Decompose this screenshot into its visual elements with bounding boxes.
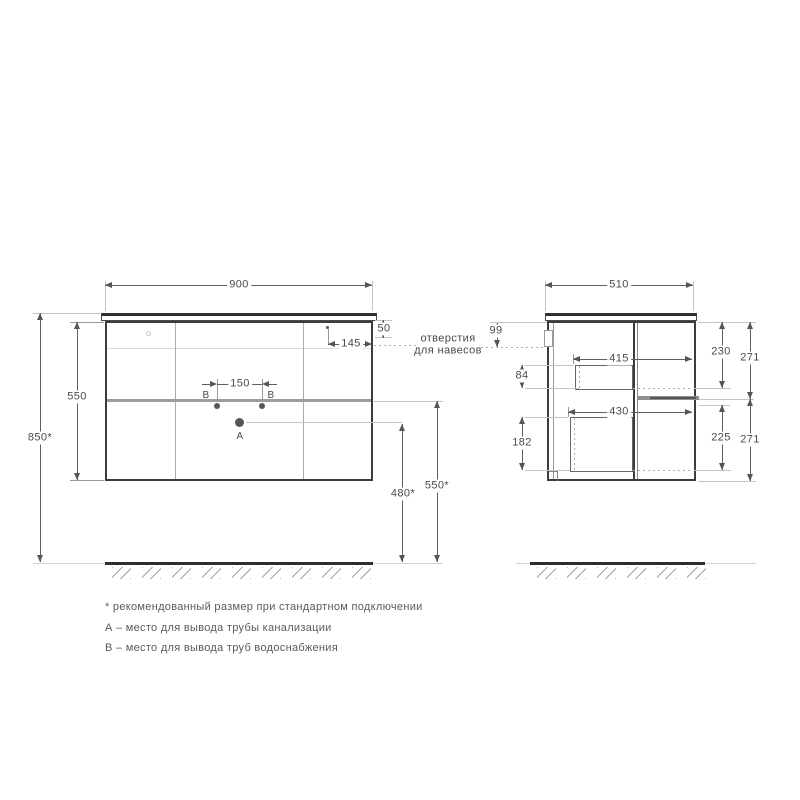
arrowhead: [399, 555, 405, 562]
arrowhead: [365, 341, 372, 347]
arrowhead: [545, 282, 552, 288]
upper-drawer-box: [575, 365, 633, 390]
front-countertop: [101, 313, 377, 321]
floor-line-front: [105, 562, 373, 565]
note-drain: А – место для вывода трубы канализации: [105, 623, 332, 634]
dim-lower-front-label: 271: [738, 434, 762, 447]
arrowhead: [747, 322, 753, 329]
extension-line: [525, 470, 570, 471]
dim-upper-front-label: 271: [738, 352, 762, 365]
side-countertop: [545, 313, 697, 321]
arrowhead: [519, 417, 525, 424]
dim-hanger-top-label: 50: [375, 323, 392, 336]
arrowhead: [519, 463, 525, 470]
water-outlet-left: [214, 403, 220, 409]
dim-drain-height-label: 480*: [389, 488, 417, 501]
arrowhead: [494, 340, 500, 347]
extension-line: [372, 281, 373, 311]
drain-outlet: [235, 418, 244, 427]
arrowhead: [568, 409, 575, 415]
arrowhead: [37, 313, 43, 320]
lower-drawer-box: [570, 417, 633, 472]
side-back-panel: [553, 323, 554, 479]
note-asterisk: * рекомендованный размер при стандартном…: [105, 602, 423, 613]
dim-cabinet-height-label: 550: [65, 391, 89, 404]
side-handle-core: [650, 397, 696, 399]
leader-line: [246, 422, 402, 423]
water-outlet-left-label: В: [200, 390, 211, 402]
dim-hanger-right-label: 145: [339, 338, 363, 351]
extension-line: [699, 399, 754, 400]
arrowhead: [747, 399, 753, 406]
dim-lower-depth-label: 430: [607, 406, 631, 419]
arrowhead: [685, 409, 692, 415]
callout-leader-right: [481, 347, 544, 348]
dim-pipes-spacing-label: 150: [228, 378, 252, 391]
arrowhead: [747, 474, 753, 481]
arrowhead: [399, 424, 405, 431]
extension-line: [694, 388, 731, 389]
extension-line: [525, 417, 568, 418]
arrowhead: [365, 282, 372, 288]
plinth-step-h: [549, 471, 557, 472]
callout-line2: для навесов: [412, 345, 484, 358]
floor-hatching-front: [112, 567, 371, 579]
dim-upper-opening-label: 230: [709, 346, 733, 359]
extension-line: [694, 470, 731, 471]
dim-upper-inner-label: 84: [513, 370, 530, 383]
extension-line: [33, 313, 100, 314]
floor-line-side: [530, 562, 705, 565]
dim-tail: [202, 384, 210, 385]
callout-leader-left: [374, 345, 416, 346]
arrowhead: [747, 392, 753, 399]
extension-line: [693, 281, 694, 311]
hanger-bracket: [544, 330, 553, 347]
arrowhead: [328, 341, 335, 347]
arrowhead: [434, 555, 440, 562]
dim-lower-inner-label: 182: [510, 437, 534, 450]
lower-drawer-dotted-side: [574, 418, 575, 471]
arrowhead: [434, 401, 440, 408]
extension-line: [70, 480, 104, 481]
plinth-step-v: [557, 471, 558, 481]
dim-tail: [269, 384, 277, 385]
note-water: В – место для вывода труб водоснабжения: [105, 643, 338, 654]
arrowhead: [686, 282, 693, 288]
front-drawer-gap: [107, 399, 371, 402]
arrowhead: [573, 356, 580, 362]
dim-width-label: 900: [227, 279, 251, 292]
floor-hatching-side: [537, 567, 706, 579]
arrowhead: [719, 463, 725, 470]
dim-mount-height-label: 850*: [26, 432, 54, 445]
extension-line: [698, 481, 756, 482]
arrowhead: [74, 322, 80, 329]
lower-drawer-dotted-bottom: [633, 470, 692, 471]
arrowhead: [210, 381, 217, 387]
water-outlet-right: [259, 403, 265, 409]
technical-drawing: 900 50 145 150 В В А 480* 550* 550: [0, 0, 800, 800]
arrowhead: [37, 555, 43, 562]
dim-lower-opening-label: 225: [709, 432, 733, 445]
dim-line-upper-depth: [573, 359, 692, 360]
upper-drawer-dotted-bottom: [633, 388, 692, 389]
extension-line: [217, 379, 218, 402]
dim-upper-depth-label: 415: [607, 353, 631, 366]
side-front-line: [633, 323, 635, 479]
arrowhead: [719, 405, 725, 412]
arrowhead: [262, 381, 269, 387]
dim-depth-label: 510: [607, 279, 631, 292]
drain-outlet-label: А: [234, 431, 245, 443]
extension-line: [699, 405, 730, 406]
arrowhead: [719, 381, 725, 388]
upper-drawer-dotted-side: [579, 366, 580, 389]
front-top-line: [107, 348, 371, 349]
hanger-hole-left: [146, 331, 151, 336]
dim-hanger-back-label: 99: [487, 325, 504, 338]
water-outlet-right-label: В: [265, 390, 276, 402]
side-front-inner-line: [637, 323, 638, 479]
arrowhead: [719, 322, 725, 329]
arrowhead: [685, 356, 692, 362]
arrowhead: [74, 473, 80, 480]
extension-line: [525, 365, 573, 366]
arrowhead: [105, 282, 112, 288]
dim-water-height-label: 550*: [423, 480, 451, 493]
extension-line: [525, 388, 579, 389]
extension-line: [374, 401, 443, 402]
